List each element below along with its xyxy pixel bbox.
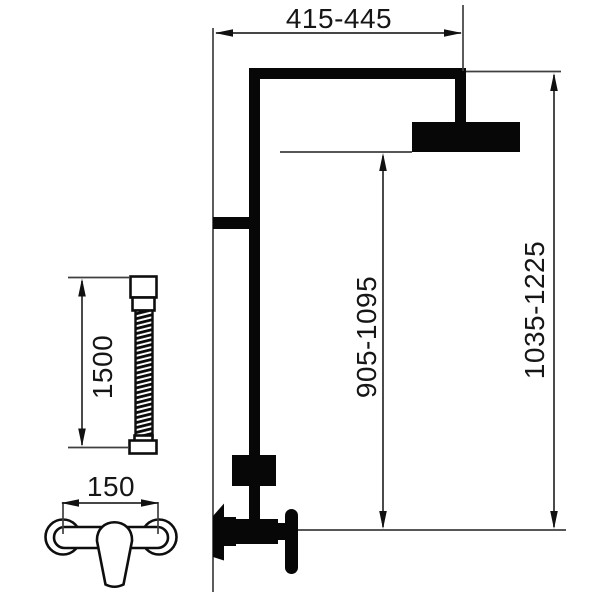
shower-head-stem [455,79,466,123]
dim-head-to-valve-label: 905-1095 [351,276,382,398]
valve-connector [278,523,286,540]
valve-handle-side [285,509,298,574]
wall-bracket [213,217,260,229]
dimension-drawing-canvas: 415-445 1035-1225 905-1095 1500 [0,0,600,600]
dim-hose-length-label: 1500 [87,335,118,399]
valve-neck [224,517,236,546]
riser-pipe [249,68,260,520]
valve-body [235,519,278,544]
drawing-background [0,0,600,600]
dim-overall-height-label: 1035-1225 [519,241,550,379]
hose-top-connector-collar [133,298,155,311]
hose-bottom-connector [130,441,157,454]
hose-top-connector [131,277,157,298]
shower-head [412,122,520,152]
slider-bracket [232,455,276,486]
dim-valve-spacing-label: 150 [87,471,135,502]
shower-arm [249,68,466,79]
dim-top-width-label: 415-445 [286,3,392,34]
hose-body [136,311,153,437]
